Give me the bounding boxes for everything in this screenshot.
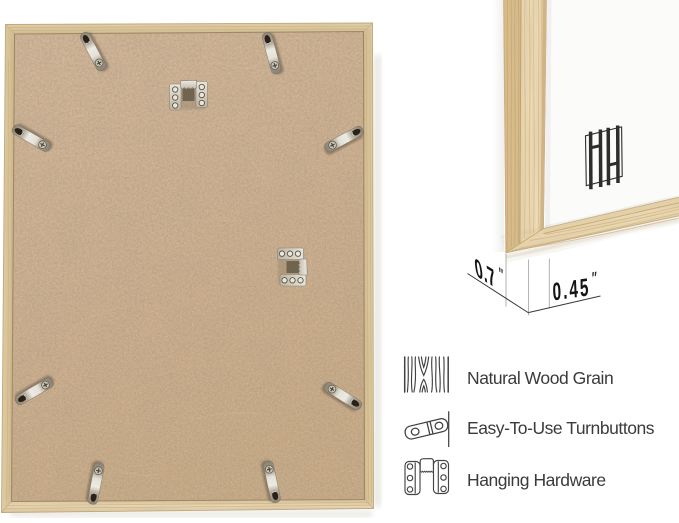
svg-text:″: ″: [592, 268, 598, 288]
svg-text:0.7: 0.7: [473, 252, 498, 295]
svg-text:Hanging Hardware: Hanging Hardware: [467, 470, 606, 490]
svg-text:Easy-To-Use Turnbuttons: Easy-To-Use Turnbuttons: [467, 418, 655, 438]
svg-text:″: ″: [498, 264, 505, 287]
svg-text:Natural Wood Grain: Natural Wood Grain: [467, 368, 613, 388]
svg-text:0.45: 0.45: [552, 274, 591, 307]
